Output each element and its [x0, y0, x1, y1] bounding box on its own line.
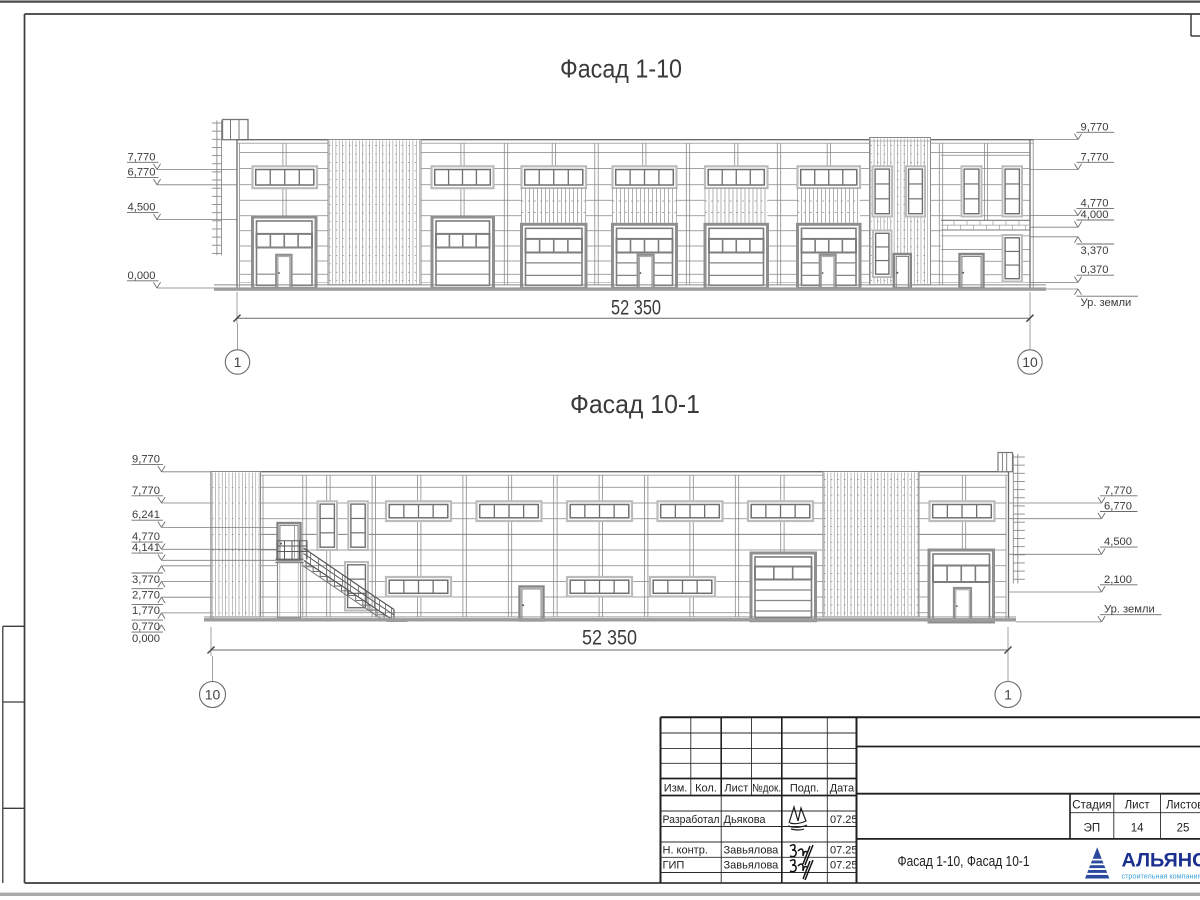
svg-text:9,770: 9,770 [1081, 121, 1109, 133]
svg-text:АЛЬЯНС: АЛЬЯНС [1122, 850, 1200, 872]
svg-text:14: 14 [1131, 823, 1144, 835]
svg-text:7,770: 7,770 [1081, 151, 1109, 163]
svg-text:№док.: №док. [752, 782, 781, 794]
svg-text:Ур. земли: Ур. земли [1081, 297, 1132, 309]
svg-text:Листов: Листов [1166, 799, 1200, 811]
svg-text:2,770: 2,770 [132, 590, 160, 602]
svg-text:3,770: 3,770 [132, 574, 160, 586]
svg-text:07.25: 07.25 [830, 814, 858, 826]
svg-text:Стадия: Стадия [1072, 799, 1111, 811]
svg-text:Н. контр.: Н. контр. [663, 845, 708, 857]
svg-text:1: 1 [234, 354, 242, 370]
svg-text:0,000: 0,000 [132, 633, 160, 645]
svg-text:0,370: 0,370 [1081, 264, 1109, 276]
svg-text:4,770: 4,770 [1081, 197, 1109, 209]
svg-text:4,500: 4,500 [128, 201, 156, 213]
svg-text:Фасад 10-1: Фасад 10-1 [570, 389, 700, 419]
svg-text:4,000: 4,000 [1081, 209, 1109, 221]
svg-text:6,770: 6,770 [128, 167, 156, 179]
svg-text:7,770: 7,770 [1104, 485, 1132, 497]
svg-text:52 350: 52 350 [582, 627, 637, 650]
svg-text:Завьялова: Завьялова [724, 860, 780, 872]
svg-text:52 350: 52 350 [611, 297, 661, 320]
svg-text:7,770: 7,770 [132, 485, 160, 497]
svg-text:Ур. земли: Ур. земли [1104, 604, 1155, 616]
svg-text:Фасад 1-10: Фасад 1-10 [560, 54, 682, 84]
svg-text:10: 10 [1022, 354, 1038, 370]
svg-text:1: 1 [1004, 686, 1012, 702]
svg-text:07.25: 07.25 [830, 860, 858, 872]
svg-text:ГИП: ГИП [663, 860, 685, 872]
svg-text:Лист: Лист [1125, 799, 1151, 811]
svg-text:Фасад 1-10, Фасад 10-1: Фасад 1-10, Фасад 10-1 [898, 853, 1030, 870]
svg-text:2,100: 2,100 [1104, 574, 1132, 586]
svg-text:1,770: 1,770 [132, 605, 160, 617]
svg-text:0,770: 0,770 [132, 621, 160, 633]
svg-text:строительная компания: строительная компания [1122, 872, 1200, 881]
svg-text:07.25: 07.25 [830, 845, 858, 857]
svg-text:Разработал: Разработал [663, 814, 720, 826]
svg-text:4,500: 4,500 [1104, 536, 1132, 548]
svg-text:Кол.: Кол. [695, 782, 717, 794]
svg-text:7,770: 7,770 [128, 151, 156, 163]
svg-text:0,000: 0,000 [128, 270, 156, 282]
svg-text:Дата: Дата [830, 782, 855, 794]
svg-text:25: 25 [1177, 823, 1190, 835]
svg-text:6,241: 6,241 [132, 509, 160, 521]
svg-text:Лист: Лист [724, 782, 748, 794]
svg-text:ЭП: ЭП [1084, 823, 1101, 835]
svg-text:Изм.: Изм. [664, 782, 688, 794]
svg-text:4,141: 4,141 [132, 542, 160, 554]
svg-text:3,370: 3,370 [1081, 245, 1109, 257]
svg-text:6,770: 6,770 [1104, 501, 1132, 513]
svg-text:Завьялова: Завьялова [724, 845, 780, 857]
svg-text:10: 10 [205, 686, 221, 702]
svg-text:9,770: 9,770 [132, 454, 160, 466]
svg-text:Подп.: Подп. [790, 782, 819, 794]
svg-text:Дьякова: Дьякова [724, 814, 767, 826]
